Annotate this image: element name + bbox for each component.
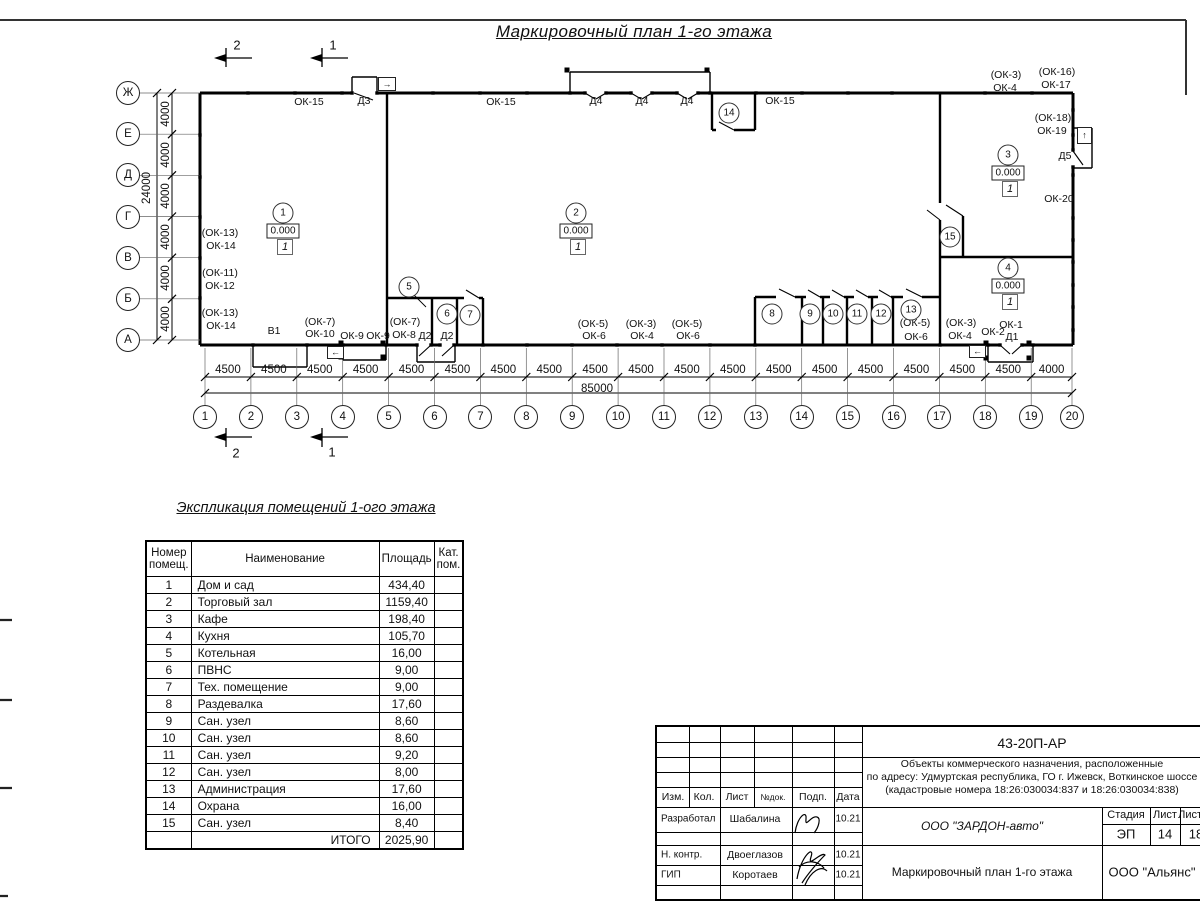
stage-label: Стадия	[1107, 809, 1145, 821]
table-row: 7Тех. помещение9,00	[146, 679, 463, 696]
plan-label: ОК-1	[999, 319, 1023, 331]
schedule-title: Экспликация помещений 1-ого этажа	[176, 500, 435, 516]
dimension-segment: 4000	[160, 101, 172, 127]
table-row: 8Раздевалка17,60	[146, 696, 463, 713]
plan-label: ОК-6	[676, 330, 700, 342]
room-number-marker: 11	[847, 304, 868, 325]
total-cell: 2025,90	[379, 832, 434, 850]
dimension-segment: 4500	[307, 364, 333, 376]
table-row: 1Дом и сад434,40	[146, 577, 463, 594]
titleblock-line	[657, 845, 1200, 846]
project-description-line: по адресу: Удмуртская республика, ГО г. …	[867, 771, 1198, 783]
room-area-cell: 9,00	[379, 679, 434, 696]
plan-label: ОК-12	[205, 280, 234, 292]
room-name-cell: Администрация	[191, 781, 379, 798]
total-dimension-bottom: 85000	[581, 383, 613, 395]
table-row: 13Администрация17,60	[146, 781, 463, 798]
room-area-cell: 434,40	[379, 577, 434, 594]
room-number-marker: 6	[437, 304, 458, 325]
plan-label: ОК-4	[948, 330, 972, 342]
room-name-cell: Кафе	[191, 611, 379, 628]
room-finish-marker: 1	[570, 239, 586, 255]
room-name-cell: Торговый зал	[191, 594, 379, 611]
sheets-total: 18	[1189, 827, 1200, 842]
room-number-cell: 6	[146, 662, 191, 679]
room-area-cell: 9,20	[379, 747, 434, 764]
grid-axis-bottom: 1	[193, 405, 217, 429]
sheets-label: Листов	[1178, 809, 1200, 821]
room-name-cell: Сан. узел	[191, 730, 379, 747]
table-row: 9Сан. узел8,60	[146, 713, 463, 730]
plan-label: (ОК-13)	[202, 227, 238, 239]
room-finish-marker: 1	[277, 239, 293, 255]
org-name: ООО "Альянс"	[1109, 865, 1196, 880]
room-number-cell: 1	[146, 577, 191, 594]
grid-axis-bottom: 13	[744, 405, 768, 429]
entrance-arrow-icon: ←	[327, 346, 344, 359]
dimension-segment: 4500	[720, 364, 746, 376]
table-row: 3Кафе198,40	[146, 611, 463, 628]
room-name-cell: Сан. узел	[191, 815, 379, 832]
dimension-segment: 4500	[491, 364, 517, 376]
entrance-arrow-icon: ←	[969, 345, 986, 358]
fold-marks	[0, 620, 12, 896]
plan-label: (ОК-18)	[1035, 112, 1071, 124]
grid-axis-bottom: 12	[698, 405, 722, 429]
room-area-cell: 16,00	[379, 645, 434, 662]
col-header-cat: Кат. пом.	[434, 541, 463, 577]
titleblock-line	[720, 727, 721, 807]
plan-label: ОК-17	[1041, 79, 1070, 91]
section-mark-label: 2	[233, 38, 240, 53]
room-cat-cell	[434, 781, 463, 798]
revision-header-cell: Подп.	[799, 791, 827, 803]
room-cat-cell	[434, 611, 463, 628]
grid-axis-bottom: 6	[423, 405, 447, 429]
room-number-cell: 10	[146, 730, 191, 747]
dimension-segment: 4000	[160, 142, 172, 168]
titleblock-line	[834, 727, 835, 807]
signer-name: Двоеглазов	[727, 849, 783, 861]
plan-label: (ОК-7)	[390, 316, 421, 328]
plan-label: ОК-14	[206, 240, 235, 252]
dimension-segment: 4000	[160, 224, 172, 250]
room-elevation-marker: 0.000	[991, 279, 1024, 294]
titleblock-line	[1150, 807, 1151, 845]
plan-label: Д5	[1059, 150, 1072, 162]
grid-axis-bottom: 9	[560, 405, 584, 429]
plan-label: Д4	[681, 95, 694, 107]
room-name-cell: Кухня	[191, 628, 379, 645]
titleblock-line	[657, 772, 862, 773]
plan-label: Д2	[441, 330, 454, 342]
sheet-number: 14	[1158, 827, 1172, 842]
room-number-cell: 15	[146, 815, 191, 832]
room-name-cell: ПВНС	[191, 662, 379, 679]
revision-header-cell: №док.	[761, 792, 786, 802]
plan-label: Д2	[419, 330, 432, 342]
dimension-segment: 4500	[674, 364, 700, 376]
plan-label: (ОК-3)	[991, 69, 1022, 81]
grid-axis-bottom: 20	[1060, 405, 1084, 429]
room-name-cell: Охрана	[191, 798, 379, 815]
grid-axis-bottom: 7	[468, 405, 492, 429]
grid-axis-left: Ж	[116, 81, 140, 105]
grid-axis-bottom: 11	[652, 405, 676, 429]
exterior-walls	[200, 93, 1073, 345]
dimension-segment: 4000	[1039, 364, 1065, 376]
table-row: 14Охрана16,00	[146, 798, 463, 815]
dimension-segment: 4500	[536, 364, 562, 376]
table-row: 12Сан. узел8,00	[146, 764, 463, 781]
room-number-marker: 14	[719, 103, 740, 124]
table-row: 5Котельная16,00	[146, 645, 463, 662]
room-number-marker: 13	[901, 300, 922, 321]
room-number-cell: 14	[146, 798, 191, 815]
project-description-line: Объекты коммерческого назначения, распол…	[901, 758, 1163, 770]
plan-label: В1	[268, 325, 281, 337]
room-cat-cell	[434, 815, 463, 832]
plan-label: (ОК-16)	[1039, 66, 1075, 78]
grid-axis-left: Е	[116, 122, 140, 146]
grid-axis-bottom: 18	[973, 405, 997, 429]
room-cat-cell	[434, 764, 463, 781]
room-elevation-marker: 0.000	[991, 166, 1024, 181]
room-number-cell: 8	[146, 696, 191, 713]
dimension-segment: 4500	[628, 364, 654, 376]
total-cell	[146, 832, 191, 850]
room-cat-cell	[434, 662, 463, 679]
grid-axis-bottom: 14	[790, 405, 814, 429]
plan-label: ОК-20	[1044, 193, 1073, 205]
room-number-cell: 11	[146, 747, 191, 764]
titleblock-line	[657, 742, 862, 743]
dimension-segment: 4500	[582, 364, 608, 376]
title-block: 43-20П-АР Объекты коммерческого назначен…	[655, 725, 1200, 901]
total-dimension-left: 24000	[141, 172, 153, 204]
plan-label: ОК-4	[630, 330, 654, 342]
room-number-marker: 10	[823, 304, 844, 325]
room-name-cell: Сан. узел	[191, 764, 379, 781]
room-number-marker: 2	[566, 203, 587, 224]
room-area-cell: 8,60	[379, 713, 434, 730]
room-number-cell: 3	[146, 611, 191, 628]
grid-axis-bottom: 19	[1019, 405, 1043, 429]
room-number-cell: 2	[146, 594, 191, 611]
room-number-cell: 12	[146, 764, 191, 781]
page-title: Маркировочный план 1-го этажа	[496, 22, 772, 42]
grid-axis-bottom: 4	[331, 405, 355, 429]
dimension-segment: 4000	[160, 183, 172, 209]
signatures	[787, 805, 847, 891]
room-area-cell: 16,00	[379, 798, 434, 815]
dimension-segment: 4500	[215, 364, 241, 376]
room-number-marker: 1	[273, 203, 294, 224]
plan-label: (ОК-3)	[626, 318, 657, 330]
signer-name: Шабалина	[730, 813, 781, 825]
grid-axis-bottom: 15	[836, 405, 860, 429]
titleblock-line	[862, 727, 863, 899]
entrance-arrow-icon: →	[378, 77, 396, 91]
signer-role: Н. контр.	[661, 850, 702, 861]
dimension-segment: 4500	[399, 364, 425, 376]
plan-label: (ОК-3)	[946, 317, 977, 329]
total-cell	[434, 832, 463, 850]
plan-label: (ОК-5)	[672, 318, 703, 330]
signer-role: ГИП	[661, 870, 681, 881]
room-finish-marker: 1	[1002, 181, 1018, 197]
titleblock-line	[862, 757, 1200, 758]
grid-axis-bottom: 16	[882, 405, 906, 429]
grid-axis-bottom: 5	[377, 405, 401, 429]
plan-label: ОК-14	[206, 320, 235, 332]
dimension-segment: 4500	[904, 364, 930, 376]
grid-axis-bottom: 2	[239, 405, 263, 429]
dimension-segment: 4500	[812, 364, 838, 376]
col-header-number: Номер помещ.	[146, 541, 191, 577]
plan-label: ОК-6	[904, 331, 928, 343]
plan-label: ОК-15	[294, 96, 323, 108]
revision-header-cell: Дата	[836, 791, 859, 803]
plan-label: ОК-15	[486, 96, 515, 108]
room-area-cell: 8,00	[379, 764, 434, 781]
plan-label: ОК-6	[582, 330, 606, 342]
room-cat-cell	[434, 730, 463, 747]
dimension-lines	[157, 93, 1072, 393]
titleblock-line	[689, 727, 690, 807]
sheet-label: Лист	[1153, 809, 1177, 821]
room-area-cell: 17,60	[379, 781, 434, 798]
grid-axis-left: В	[116, 246, 140, 270]
room-number-marker: 3	[998, 145, 1019, 166]
room-cat-cell	[434, 679, 463, 696]
drawing-title: Маркировочный план 1-го этажа	[892, 865, 1073, 879]
doc-number: 43-20П-АР	[997, 735, 1066, 751]
table-row: 15Сан. узел8,40	[146, 815, 463, 832]
plan-label: (ОК-11)	[202, 267, 238, 279]
revision-header-cell: Кол.	[694, 791, 715, 803]
room-cat-cell	[434, 594, 463, 611]
room-number-marker: 8	[762, 304, 783, 325]
entrance-arrow-icon: ↑	[1077, 127, 1092, 144]
room-cat-cell	[434, 645, 463, 662]
company-name: ООО "ЗАРДОН-авто"	[921, 819, 1043, 833]
section-mark-label: 1	[329, 38, 336, 53]
room-name-cell: Котельная	[191, 645, 379, 662]
room5-leader	[413, 294, 426, 307]
dimension-segment: 4500	[995, 364, 1021, 376]
room-name-cell: Раздевалка	[191, 696, 379, 713]
table-row: 6ПВНС9,00	[146, 662, 463, 679]
grid-axis-bottom: 8	[514, 405, 538, 429]
grid-axis-bottom: 17	[927, 405, 951, 429]
room-number-marker: 4	[998, 258, 1019, 279]
grid-axis-left: А	[116, 328, 140, 352]
table-row: 10Сан. узел8,60	[146, 730, 463, 747]
drawing-sheet: { "sheet": { "title": "Маркировочный пла…	[0, 0, 1200, 900]
grid-axis-left: Б	[116, 287, 140, 311]
room-cat-cell	[434, 577, 463, 594]
plan-label: ОК-19	[1037, 125, 1066, 137]
titleblock-line	[792, 727, 793, 807]
dimension-segment: 4500	[858, 364, 884, 376]
room-cat-cell	[434, 747, 463, 764]
room-area-cell: 9,00	[379, 662, 434, 679]
dimension-segment: 4500	[353, 364, 379, 376]
room-cat-cell	[434, 628, 463, 645]
plan-label: Д4	[590, 95, 603, 107]
room-area-cell: 198,40	[379, 611, 434, 628]
grid-axis-bottom: 3	[285, 405, 309, 429]
room-cat-cell	[434, 798, 463, 815]
titleblock-line	[720, 807, 721, 899]
plan-label: ОК-9	[340, 330, 364, 342]
signer-name: Коротаев	[732, 869, 777, 881]
plan-label: Д1	[1006, 331, 1019, 343]
revision-header-cell: Лист	[726, 791, 749, 803]
plan-label: ОК-9	[366, 330, 390, 342]
room-area-cell: 17,60	[379, 696, 434, 713]
room-schedule-table: Номер помещ. Наименование Площадь Кат. п…	[145, 540, 464, 850]
plan-label: ОК-8	[392, 329, 416, 341]
signer-role: Разработал	[661, 814, 715, 825]
room-area-cell: 8,60	[379, 730, 434, 747]
plan-label: Д3	[358, 95, 371, 107]
col-header-name: Наименование	[191, 541, 379, 577]
room-finish-marker: 1	[1002, 294, 1018, 310]
room-area-cell: 1159,40	[379, 594, 434, 611]
dimension-segment: 4000	[160, 307, 172, 333]
stage-value: ЭП	[1117, 827, 1136, 842]
grid-axis-left: Г	[116, 205, 140, 229]
total-row: ИТОГО2025,90	[146, 832, 463, 850]
room-name-cell: Тех. помещение	[191, 679, 379, 696]
titleblock-line	[657, 757, 862, 758]
titleblock-line	[657, 787, 862, 788]
room-number-cell: 5	[146, 645, 191, 662]
table-row: 4Кухня105,70	[146, 628, 463, 645]
plan-label: (ОК-7)	[305, 316, 336, 328]
plan-label: ОК-15	[765, 95, 794, 107]
room-cat-cell	[434, 696, 463, 713]
plan-label: Д4	[636, 95, 649, 107]
revision-header-cell: Изм.	[662, 791, 685, 803]
room-cat-cell	[434, 713, 463, 730]
section-mark-label: 2	[232, 446, 239, 461]
schedule-header-row: Номер помещ. Наименование Площадь Кат. п…	[146, 541, 463, 577]
grid-axis-left: Д	[116, 163, 140, 187]
room-number-cell: 4	[146, 628, 191, 645]
plan-label: ОК-4	[993, 82, 1017, 94]
plan-label: (ОК-5)	[578, 318, 609, 330]
titleblock-line	[1180, 807, 1181, 845]
table-row: 11Сан. узел9,20	[146, 747, 463, 764]
section-mark-label: 1	[328, 445, 335, 460]
dimension-segment: 4500	[261, 364, 287, 376]
room-name-cell: Сан. узел	[191, 747, 379, 764]
plan-label: (ОК-13)	[202, 307, 238, 319]
interior-walls	[387, 93, 1073, 345]
room-name-cell: Сан. узел	[191, 713, 379, 730]
total-label-cell: ИТОГО	[191, 832, 379, 850]
room-number-marker: 15	[940, 227, 961, 248]
dimension-segment: 4000	[160, 265, 172, 291]
dimension-segment: 4500	[445, 364, 471, 376]
room-number-marker: 12	[871, 304, 892, 325]
project-description-line: (кадастровые номера 18:26:030034:837 и 1…	[885, 784, 1179, 796]
room-area-cell: 8,40	[379, 815, 434, 832]
room-area-cell: 105,70	[379, 628, 434, 645]
grid-axis-bottom: 10	[606, 405, 630, 429]
room-name-cell: Дом и сад	[191, 577, 379, 594]
room-number-marker: 9	[800, 304, 821, 325]
room-number-marker: 5	[399, 277, 420, 298]
room-number-cell: 7	[146, 679, 191, 696]
room-number-marker: 7	[460, 305, 481, 326]
room-number-cell: 13	[146, 781, 191, 798]
col-header-area: Площадь	[379, 541, 434, 577]
table-row: 2Торговый зал1159,40	[146, 594, 463, 611]
plan-label: ОК-10	[305, 328, 334, 340]
room-number-cell: 9	[146, 713, 191, 730]
titleblock-line	[754, 727, 755, 807]
room-elevation-marker: 0.000	[559, 224, 592, 239]
room-elevation-marker: 0.000	[266, 224, 299, 239]
dimension-segment: 4500	[950, 364, 976, 376]
titleblock-line	[1102, 824, 1200, 825]
titleblock-line	[1102, 807, 1103, 899]
dimension-segment: 4500	[766, 364, 792, 376]
